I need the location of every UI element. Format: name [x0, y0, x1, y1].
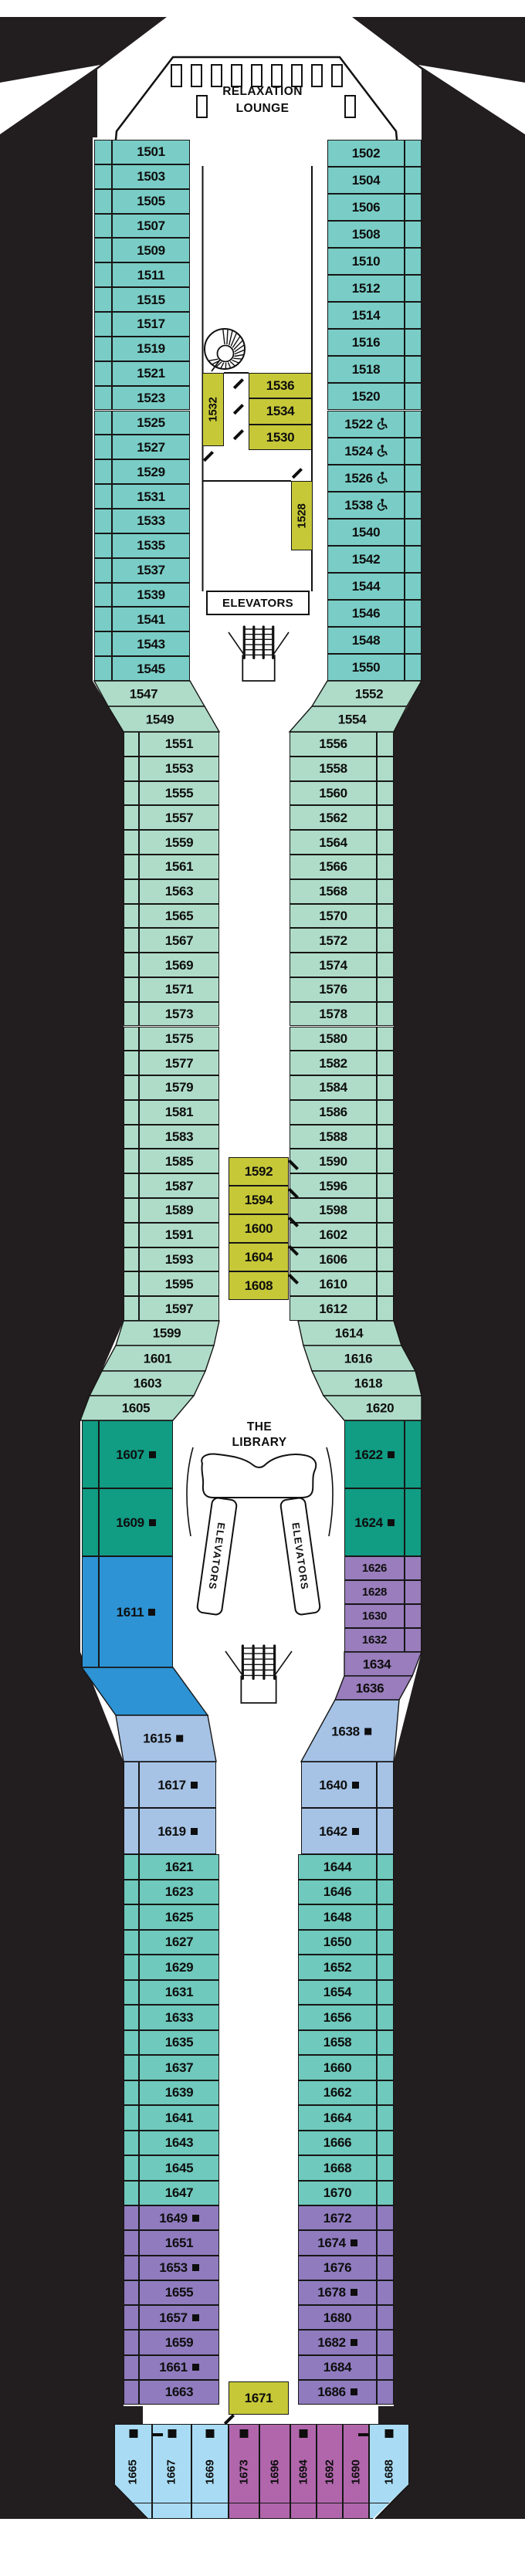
cabin-number: 1653 [159, 2261, 188, 2274]
cabin-1609[interactable]: 1609 [99, 1488, 173, 1556]
cabin-1585[interactable]: 1585 [139, 1149, 219, 1173]
cabin-number: 1660 [323, 2061, 352, 2074]
cabin-1538[interactable]: 1538 [327, 492, 405, 519]
cabin-1572[interactable]: 1572 [290, 928, 377, 953]
cabin-trapezoid[interactable]: 1605 [122, 1402, 151, 1415]
cabin-1608[interactable]: 1608 [229, 1271, 289, 1300]
balcony-cell [377, 2380, 394, 2405]
cabin-trapezoid[interactable]: 1636 [356, 1682, 384, 1695]
cabin-1623[interactable]: 1623 [139, 1880, 219, 1905]
cabin-1596[interactable]: 1596 [290, 1173, 377, 1198]
cabin-number: 1525 [137, 416, 165, 429]
cabin-1541[interactable]: 1541 [112, 607, 190, 631]
cabin-number: 1588 [319, 1130, 347, 1143]
cabin-1593[interactable]: 1593 [139, 1247, 219, 1272]
balcony-cell [124, 1149, 139, 1173]
cabin-1505[interactable]: 1505 [112, 189, 190, 214]
cabin-1642[interactable]: 1642 [301, 1808, 377, 1854]
cabin-number: 1593 [165, 1253, 194, 1266]
cabin-1531[interactable]: 1531 [112, 484, 190, 509]
cabin-1522[interactable]: 1522 [327, 411, 405, 438]
cabin-number: 1562 [319, 811, 347, 824]
cabin-1558[interactable]: 1558 [290, 757, 377, 781]
cabin-1674[interactable]: 1674 [298, 2230, 377, 2255]
cabin-1645[interactable]: 1645 [139, 2155, 219, 2181]
cabin-1568[interactable]: 1568 [290, 879, 377, 904]
cabin-1637[interactable]: 1637 [139, 2055, 219, 2080]
cabin-trapezoid[interactable]: 1615 [143, 1732, 183, 1745]
cabin-number: 1643 [165, 2136, 194, 2149]
cabin-1644[interactable]: 1644 [298, 1854, 377, 1880]
cabin-1569[interactable]: 1569 [139, 953, 219, 977]
cabin-1632[interactable]: 1632 [344, 1628, 405, 1652]
balcony-cell [377, 953, 394, 977]
cabin-1507[interactable]: 1507 [112, 214, 190, 239]
cabin-1651[interactable]: 1651 [139, 2230, 219, 2255]
cabin-1509[interactable]: 1509 [112, 238, 190, 262]
cabin-1684[interactable]: 1684 [298, 2355, 377, 2380]
cabin-1624[interactable]: 1624 [344, 1488, 405, 1556]
balcony-cell [377, 928, 394, 953]
balcony-cell [94, 312, 112, 337]
cabin-number: 1539 [137, 588, 165, 601]
cabin-1659[interactable]: 1659 [139, 2330, 219, 2354]
balcony-cell [124, 1296, 139, 1321]
cabin-number: 1578 [319, 1007, 347, 1021]
cabin-1578[interactable]: 1578 [290, 1002, 377, 1027]
cabin-1528[interactable]: 1528 [291, 481, 313, 550]
library-label: THE [247, 1420, 272, 1434]
balcony-cell [377, 2355, 394, 2380]
balcony-cell [377, 830, 394, 855]
cabin-1657[interactable]: 1657 [139, 2305, 219, 2330]
cabin-number: 1607 [116, 1448, 144, 1461]
cabin-1646[interactable]: 1646 [298, 1880, 377, 1905]
balcony-cell [82, 1420, 99, 1488]
cabin-1511[interactable]: 1511 [112, 262, 190, 287]
cabin-1658[interactable]: 1658 [298, 2030, 377, 2056]
cabin-1525[interactable]: 1525 [112, 411, 190, 435]
cabin-number: 1546 [352, 607, 381, 620]
cabin-1649[interactable]: 1649 [139, 2205, 219, 2230]
cabin-1662[interactable]: 1662 [298, 2080, 377, 2106]
cabin-number: 1575 [165, 1032, 194, 1045]
cabin-trapezoid[interactable]: 1634 [363, 1658, 391, 1671]
balcony-cell [124, 732, 139, 757]
balcony-cell [405, 573, 422, 600]
cabin-number: 1684 [323, 2361, 352, 2374]
cabin-number: 1680 [323, 2311, 352, 2324]
cabin-1694[interactable]: 1694 [290, 2424, 317, 2519]
balcony-cell [377, 1854, 394, 1880]
cabin-1570[interactable]: 1570 [290, 904, 377, 929]
cabin-1534[interactable]: 1534 [249, 398, 312, 424]
cabin-1663[interactable]: 1663 [139, 2380, 219, 2405]
cabin-1559[interactable]: 1559 [139, 830, 219, 855]
cabin-1602[interactable]: 1602 [290, 1223, 377, 1247]
cabin-1563[interactable]: 1563 [139, 879, 219, 904]
cabin-1652[interactable]: 1652 [298, 1955, 377, 1980]
balcony-cell [405, 465, 422, 492]
cabin-number: 1505 [137, 195, 165, 208]
suite-square-icon [351, 2339, 357, 2346]
cabin-number: 1512 [352, 282, 381, 295]
cabin-1564[interactable]: 1564 [290, 830, 377, 855]
balcony-cell [94, 484, 112, 509]
cabin-1508[interactable]: 1508 [327, 221, 405, 248]
cabin-number: 1610 [319, 1278, 347, 1291]
cabin-1577[interactable]: 1577 [139, 1051, 219, 1075]
cabin-1597[interactable]: 1597 [139, 1296, 219, 1321]
cabin-1648[interactable]: 1648 [298, 1904, 377, 1930]
cabin-1673[interactable]: 1673 [229, 2424, 259, 2519]
cabin-number: 1638 [331, 1725, 360, 1738]
cabin-number: 1597 [165, 1302, 194, 1315]
balcony-cell [405, 1628, 422, 1652]
cabin-1502[interactable]: 1502 [327, 140, 405, 167]
cabin-1622[interactable]: 1622 [344, 1420, 405, 1488]
cabin-1594[interactable]: 1594 [229, 1186, 289, 1214]
cabin-1635[interactable]: 1635 [139, 2030, 219, 2056]
cabin-1656[interactable]: 1656 [298, 2005, 377, 2030]
cabin-1553[interactable]: 1553 [139, 757, 219, 781]
cabin-number: 1672 [323, 2212, 352, 2225]
balcony-cell [124, 2055, 139, 2080]
cabin-1527[interactable]: 1527 [112, 435, 190, 459]
cabin-1660[interactable]: 1660 [298, 2055, 377, 2080]
cabin-number: 1560 [319, 787, 347, 800]
balcony-cell [377, 1100, 394, 1125]
balcony-cell [405, 1488, 422, 1556]
cabin-1510[interactable]: 1510 [327, 248, 405, 275]
cabin-1551[interactable]: 1551 [139, 732, 219, 757]
library-label: LIBRARY [232, 1436, 286, 1450]
balcony-cell [124, 1904, 139, 1930]
cabin-1550[interactable]: 1550 [327, 654, 405, 681]
cabin-number: 1649 [159, 2212, 188, 2225]
balcony-cell [124, 1271, 139, 1296]
cabin-1526[interactable]: 1526 [327, 465, 405, 492]
cabin-number: 1586 [319, 1105, 347, 1119]
cabin-1516[interactable]: 1516 [327, 329, 405, 356]
cabin-1639[interactable]: 1639 [139, 2080, 219, 2106]
cabin-1582[interactable]: 1582 [290, 1051, 377, 1075]
cabin-number: 1582 [319, 1057, 347, 1070]
balcony-cell [377, 1247, 394, 1272]
balcony-cell [405, 221, 422, 248]
cabin-number: 1676 [323, 2261, 352, 2274]
cabin-number: 1550 [352, 661, 381, 674]
cabin-number: 1509 [137, 244, 165, 257]
suite-square-icon [148, 1609, 155, 1616]
cabin-number: 1523 [137, 391, 165, 405]
cabin-1540[interactable]: 1540 [327, 519, 405, 546]
cabin-1627[interactable]: 1627 [139, 1930, 219, 1955]
cabin-number: 1563 [165, 885, 194, 898]
cabin-1595[interactable]: 1595 [139, 1271, 219, 1296]
cabin-1680[interactable]: 1680 [298, 2305, 377, 2330]
cabin-number: 1620 [366, 1402, 395, 1415]
cabin-1655[interactable]: 1655 [139, 2280, 219, 2305]
balcony-cell [377, 977, 394, 1002]
balcony-cell [124, 1980, 139, 2006]
cabin-number: 1667 [166, 2459, 178, 2484]
cabin-1512[interactable]: 1512 [327, 275, 405, 302]
cabin-1529[interactable]: 1529 [112, 459, 190, 484]
cabin-1542[interactable]: 1542 [327, 546, 405, 573]
cabin-number: 1543 [137, 638, 165, 651]
balcony-cell [377, 2205, 394, 2230]
balcony-cell [124, 2330, 139, 2354]
cabin-1631[interactable]: 1631 [139, 1980, 219, 2006]
cabin-1556[interactable]: 1556 [290, 732, 377, 757]
cabin-1506[interactable]: 1506 [327, 194, 405, 221]
cabin-1574[interactable]: 1574 [290, 953, 377, 977]
cabin-1589[interactable]: 1589 [139, 1198, 219, 1223]
cabin-trapezoid[interactable]: 1638 [331, 1725, 371, 1738]
cabin-number: 1580 [319, 1032, 347, 1045]
cabin-1643[interactable]: 1643 [139, 2131, 219, 2156]
cabin-1514[interactable]: 1514 [327, 302, 405, 329]
cabin-trapezoid[interactable]: 1616 [344, 1352, 373, 1366]
cabin-number: 1671 [245, 2392, 273, 2405]
forward-elevators[interactable]: ELEVATORS [206, 591, 310, 615]
cabin-1619[interactable]: 1619 [139, 1808, 216, 1854]
cabin-number: 1670 [323, 2186, 352, 2199]
balcony-cell [124, 2256, 139, 2280]
cabin-1621[interactable]: 1621 [139, 1854, 219, 1880]
cabin-1661[interactable]: 1661 [139, 2355, 219, 2380]
cabin-1628[interactable]: 1628 [344, 1580, 405, 1604]
balcony-cell [405, 1580, 422, 1604]
cabin-1579[interactable]: 1579 [139, 1075, 219, 1100]
cabin-1544[interactable]: 1544 [327, 573, 405, 600]
balcony-cell [377, 904, 394, 929]
suite-square-icon [300, 2429, 308, 2438]
cabin-number: 1537 [137, 564, 165, 577]
cabin-1586[interactable]: 1586 [290, 1100, 377, 1125]
cabin-number: 1527 [137, 441, 165, 454]
cabin-1682[interactable]: 1682 [298, 2330, 377, 2354]
cabin-1536[interactable]: 1536 [249, 373, 312, 398]
cabin-trapezoid[interactable]: 1614 [335, 1327, 364, 1340]
suite-square-icon [388, 1519, 395, 1526]
cabin-trapezoid[interactable]: 1547 [130, 688, 158, 701]
cabin-1670[interactable]: 1670 [298, 2181, 377, 2206]
cabin-number: 1557 [165, 811, 194, 824]
cabin-1515[interactable]: 1515 [112, 287, 190, 312]
cabin-number: 1501 [137, 145, 165, 158]
cabin-1539[interactable]: 1539 [112, 583, 190, 608]
cabin-number: 1640 [319, 1779, 347, 1792]
cabin-1678[interactable]: 1678 [298, 2280, 377, 2305]
cabin-1517[interactable]: 1517 [112, 312, 190, 337]
elevators-label: ELEVATORS [206, 1522, 227, 1590]
cabin-number: 1535 [137, 539, 165, 552]
cabin-1666[interactable]: 1666 [298, 2131, 377, 2156]
cabin-1668[interactable]: 1668 [298, 2155, 377, 2181]
cabin-1532[interactable]: 1532 [202, 373, 224, 446]
cabin-trapezoid[interactable]: 1552 [355, 688, 384, 701]
cabin-1518[interactable]: 1518 [327, 356, 405, 383]
cabin-1546[interactable]: 1546 [327, 600, 405, 627]
balcony-cell [377, 2080, 394, 2106]
cabin-1611[interactable]: 1611 [99, 1556, 173, 1667]
balcony-cell [124, 953, 139, 977]
cabin-1692[interactable]: 1692 [317, 2424, 343, 2519]
cabin-1584[interactable]: 1584 [290, 1075, 377, 1100]
cabin-trapezoid[interactable]: 1549 [146, 713, 174, 726]
balcony-cell [124, 1930, 139, 1955]
balcony-cell [377, 1002, 394, 1027]
cabin-1592[interactable]: 1592 [229, 1157, 289, 1186]
balcony-cell [377, 1880, 394, 1905]
cabin-1671[interactable]: 1671 [229, 2381, 289, 2415]
cabin-number: 1648 [323, 1911, 352, 1924]
cabin-1607[interactable]: 1607 [99, 1420, 173, 1488]
cabin-1533[interactable]: 1533 [112, 509, 190, 533]
cabin-1557[interactable]: 1557 [139, 805, 219, 830]
cabin-number: 1604 [245, 1251, 273, 1264]
cabin-1640[interactable]: 1640 [301, 1762, 377, 1808]
cabin-1537[interactable]: 1537 [112, 558, 190, 583]
cabin-1571[interactable]: 1571 [139, 977, 219, 1002]
cabin-1573[interactable]: 1573 [139, 1002, 219, 1027]
balcony-cell [405, 302, 422, 329]
cabin-1504[interactable]: 1504 [327, 167, 405, 194]
suite-square-icon [176, 1735, 183, 1742]
cabin-1600[interactable]: 1600 [229, 1214, 289, 1243]
balcony-cell [405, 600, 422, 627]
cabin-1598[interactable]: 1598 [290, 1198, 377, 1223]
cabin-number: 1547 [130, 688, 158, 701]
cabin-1664[interactable]: 1664 [298, 2105, 377, 2131]
cabin-1604[interactable]: 1604 [229, 1243, 289, 1271]
cabin-1560[interactable]: 1560 [290, 781, 377, 806]
cabin-1524[interactable]: 1524 [327, 438, 405, 465]
cabin-number: 1516 [352, 336, 381, 349]
cabin-number: 1630 [362, 1610, 387, 1622]
balcony-cell [377, 879, 394, 904]
cabin-1630[interactable]: 1630 [344, 1604, 405, 1628]
balcony-cell [124, 879, 139, 904]
cabin-1676[interactable]: 1676 [298, 2256, 377, 2280]
balcony-cell [377, 805, 394, 830]
cabin-number: 1622 [354, 1448, 383, 1461]
cabin-1588[interactable]: 1588 [290, 1125, 377, 1149]
cabin-1548[interactable]: 1548 [327, 627, 405, 654]
cabin-trapezoid[interactable]: 1599 [153, 1327, 181, 1340]
balcony-cell [377, 1271, 394, 1296]
balcony-cell [377, 2155, 394, 2181]
balcony-cell [94, 386, 112, 411]
cabin-1576[interactable]: 1576 [290, 977, 377, 1002]
cabin-number: 1618 [354, 1377, 383, 1390]
cabin-1617[interactable]: 1617 [139, 1762, 216, 1808]
cabin-1647[interactable]: 1647 [139, 2181, 219, 2206]
cabin-1555[interactable]: 1555 [139, 781, 219, 806]
cabin-1535[interactable]: 1535 [112, 533, 190, 558]
cabin-1566[interactable]: 1566 [290, 855, 377, 879]
cabin-1641[interactable]: 1641 [139, 2105, 219, 2131]
cabin-trapezoid[interactable]: 1618 [354, 1377, 383, 1390]
cabin-1590[interactable]: 1590 [290, 1149, 377, 1173]
cabin-1629[interactable]: 1629 [139, 1955, 219, 1980]
cabin-1565[interactable]: 1565 [139, 904, 219, 929]
cabin-1626[interactable]: 1626 [344, 1556, 405, 1580]
cabin-1625[interactable]: 1625 [139, 1904, 219, 1930]
balcony-cell [124, 1854, 139, 1880]
cabin-number: 1564 [319, 836, 347, 849]
cabin-number: 1592 [245, 1165, 273, 1178]
cabin-1580[interactable]: 1580 [290, 1027, 377, 1051]
balcony-cell [377, 855, 394, 879]
cabin-1561[interactable]: 1561 [139, 855, 219, 879]
cabin-1519[interactable]: 1519 [112, 337, 190, 361]
cabin-1669[interactable]: 1669 [191, 2424, 229, 2519]
cabin-trapezoid[interactable]: 1620 [366, 1402, 395, 1415]
cabin-1587[interactable]: 1587 [139, 1173, 219, 1198]
cabin-trapezoid[interactable]: 1603 [134, 1377, 162, 1390]
cabin-number: 1686 [317, 2385, 346, 2398]
cabin-number: 1623 [165, 1885, 194, 1898]
cabin-1530[interactable]: 1530 [249, 425, 312, 450]
cabin-1653[interactable]: 1653 [139, 2256, 219, 2280]
cabin-1503[interactable]: 1503 [112, 164, 190, 189]
cabin-1633[interactable]: 1633 [139, 2005, 219, 2030]
cabin-number: 1599 [153, 1327, 181, 1340]
cabin-1612[interactable]: 1612 [290, 1296, 377, 1321]
cabin-1575[interactable]: 1575 [139, 1027, 219, 1051]
cabin-1501[interactable]: 1501 [112, 140, 190, 164]
balcony-cell [377, 757, 394, 781]
balcony-cell [124, 2105, 139, 2131]
cabin-number: 1587 [165, 1180, 194, 1193]
cabin-number: 1570 [319, 909, 347, 922]
cabin-number: 1612 [319, 1302, 347, 1315]
cabin-1521[interactable]: 1521 [112, 361, 190, 386]
cabin-1686[interactable]: 1686 [298, 2380, 377, 2405]
cabin-trapezoid[interactable]: 1601 [144, 1352, 172, 1366]
cabin-1696[interactable]: 1696 [259, 2424, 290, 2519]
cabin-1581[interactable]: 1581 [139, 1100, 219, 1125]
cabin-number: 1651 [165, 2236, 194, 2249]
cabin-1523[interactable]: 1523 [112, 386, 190, 411]
cabin-1690[interactable]: 1690 [343, 2424, 369, 2519]
suite-square-icon [192, 2215, 199, 2222]
cabin-number: 1572 [319, 934, 347, 947]
cabin-1650[interactable]: 1650 [298, 1930, 377, 1955]
cabin-1545[interactable]: 1545 [112, 656, 190, 681]
cabin-1667[interactable]: 1667 [152, 2424, 191, 2519]
cabin-number: 1531 [137, 490, 165, 503]
cabin-1610[interactable]: 1610 [290, 1271, 377, 1296]
cabin-1672[interactable]: 1672 [298, 2205, 377, 2230]
cabin-number: 1674 [317, 2236, 346, 2249]
cabin-1520[interactable]: 1520 [327, 383, 405, 410]
cabin-number: 1536 [266, 379, 295, 392]
balcony-cell [405, 140, 422, 167]
cabin-1654[interactable]: 1654 [298, 1980, 377, 2006]
cabin-1562[interactable]: 1562 [290, 805, 377, 830]
cabin-1606[interactable]: 1606 [290, 1247, 377, 1272]
cabin-1583[interactable]: 1583 [139, 1125, 219, 1149]
cabin-1543[interactable]: 1543 [112, 631, 190, 656]
cabin-number: 1568 [319, 885, 347, 898]
cabin-1567[interactable]: 1567 [139, 928, 219, 953]
cabin-trapezoid[interactable]: 1554 [338, 713, 367, 726]
cabin-1591[interactable]: 1591 [139, 1223, 219, 1247]
